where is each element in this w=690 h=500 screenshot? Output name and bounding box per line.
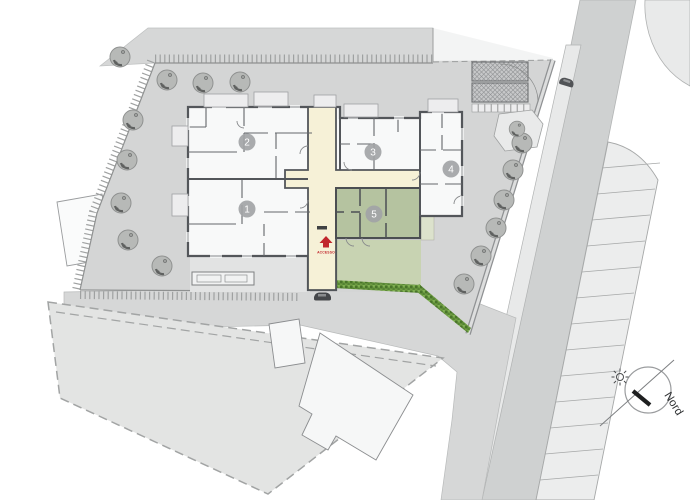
bike-storage <box>192 272 254 285</box>
unit-badge-5: 5 <box>366 206 383 223</box>
tree-icon <box>503 160 523 180</box>
tree-icon <box>494 190 514 210</box>
tree-icon <box>454 274 474 294</box>
unit-3-label: 3 <box>370 148 376 159</box>
unit-5-label: 5 <box>371 210 377 221</box>
access-label: ACCESSO <box>317 251 335 255</box>
tree-icon <box>157 70 177 90</box>
unit-badge-2: 2 <box>239 134 256 151</box>
south-patio <box>190 256 310 292</box>
garden-lawn <box>337 240 421 288</box>
walkway-pavers <box>472 104 530 112</box>
unit-1-label: 1 <box>244 205 250 216</box>
carport-hatched-1 <box>472 62 528 81</box>
unit-4-label: 4 <box>448 165 454 176</box>
tree-icon <box>111 193 131 213</box>
tree-icon <box>486 218 506 238</box>
tree-icon <box>193 73 213 93</box>
tree-icon <box>117 150 137 170</box>
tree-icon <box>123 110 143 130</box>
car-icon-south <box>314 293 331 301</box>
tree-icon <box>230 72 250 92</box>
unit-badge-4: 4 <box>443 161 460 178</box>
carport-hatched-2 <box>472 83 528 102</box>
tree-icon <box>471 246 491 266</box>
entrance-canopy <box>317 226 327 230</box>
unit-badge-1: 1 <box>239 201 256 218</box>
neighbour-building-small <box>269 319 305 368</box>
tree-icon <box>118 230 138 250</box>
tree-icon <box>509 121 525 137</box>
tree-icon <box>110 47 130 67</box>
tree-icon <box>152 256 172 276</box>
site-plan-drawing: ACCESSO 1 <box>0 0 690 500</box>
site-plan-canvas: ACCESSO 1 <box>0 0 690 500</box>
unit-badge-3: 3 <box>365 144 382 161</box>
unit-2-label: 2 <box>244 138 250 149</box>
